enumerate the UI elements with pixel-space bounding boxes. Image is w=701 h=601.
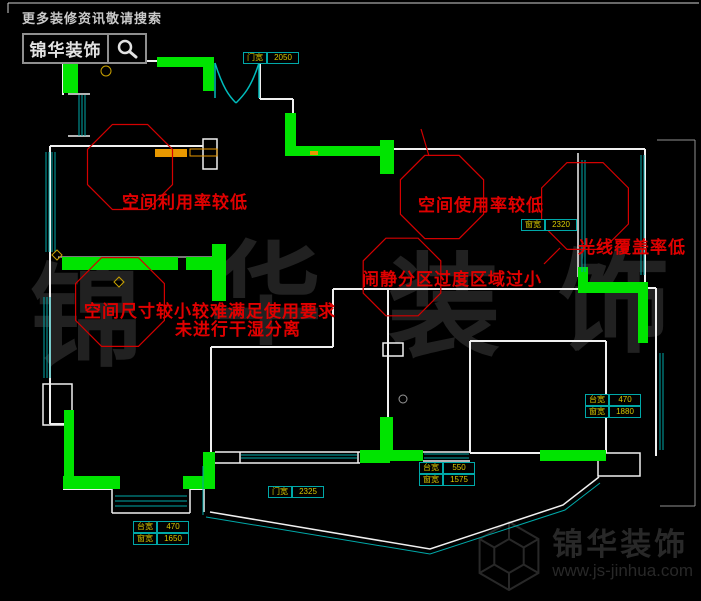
dimension-row: 门宽 2050 [243,52,299,64]
beam-marker-icon [310,151,318,155]
dimension-value: 2325 [292,486,324,498]
dimension-row: 窗宽 1650 [133,533,189,545]
brand-search-box: 锦华装饰 [22,33,147,64]
annotation-wet-dry: 未进行干湿分离 [175,315,301,340]
annotation-zone-transition: 闹静分区过度区域过小 [362,265,542,290]
dimension-label: 门宽 [243,52,267,64]
leader-line [544,248,560,264]
search-icon [109,35,145,62]
dimension-row: 窗宽 1880 [585,406,641,418]
cad-floorplan-screenshot: 锦 华 装 饰 [0,0,701,601]
switch-icon [114,277,124,287]
cad-symbols-layer [52,66,407,403]
dimension-label: 台宽 [585,394,609,406]
beam-marker-icon [155,149,187,157]
dimension-box-door-top: 门宽 2050 [243,52,299,64]
dimension-label: 窗宽 [133,533,157,545]
dimension-row: 台宽 470 [133,521,189,533]
dimension-box-door-bottom: 门宽 2325 [268,486,324,498]
windows-layer [44,95,663,554]
search-tagline: 更多装修资讯敬请搜索 [22,8,162,27]
dimension-row: 窗宽 1575 [419,474,475,486]
dimension-value: 1880 [609,406,641,418]
switch-icon [52,250,62,260]
entry-door-icon [215,63,259,103]
dimension-value: 550 [443,462,475,474]
dimension-box-bottom-left: 台宽 470 窗宽 1650 [133,521,189,545]
dimension-label: 台宽 [419,462,443,474]
dimension-label: 窗宽 [521,219,545,231]
dimension-row: 台宽 550 [419,462,475,474]
leader-line [421,129,429,156]
fixture-icon [101,66,111,76]
dimension-value: 470 [609,394,641,406]
header-watermark: 更多装修资讯敬请搜索 锦华装饰 [22,8,162,64]
dimension-box-bottom-center: 台宽 550 窗宽 1575 [419,462,475,486]
dimension-row: 台宽 470 [585,394,641,406]
annotation-space-utilization: 空间利用率较低 [122,188,248,213]
highlighted-walls-layer [62,57,648,489]
dimension-box-window-right: 窗宽 2320 [521,219,577,231]
dimension-value: 2320 [545,219,577,231]
dimension-value: 2050 [267,52,299,64]
dimension-box-bottom-right: 台宽 470 窗宽 1880 [585,394,641,418]
dimension-row: 窗宽 2320 [521,219,577,231]
brand-name: 锦华装饰 [24,35,109,62]
dimension-value: 470 [157,521,189,533]
fixture-icon [399,395,407,403]
dimension-label: 窗宽 [585,406,609,418]
dimension-label: 窗宽 [419,474,443,486]
annotation-light-coverage: 光线覆盖率低 [578,233,686,258]
dimension-label: 门宽 [268,486,292,498]
dimension-label: 台宽 [133,521,157,533]
dimension-value: 1650 [157,533,189,545]
dimension-value: 1575 [443,474,475,486]
annotation-space-usage: 空间使用率较低 [418,191,544,216]
dimension-row: 门宽 2325 [268,486,324,498]
